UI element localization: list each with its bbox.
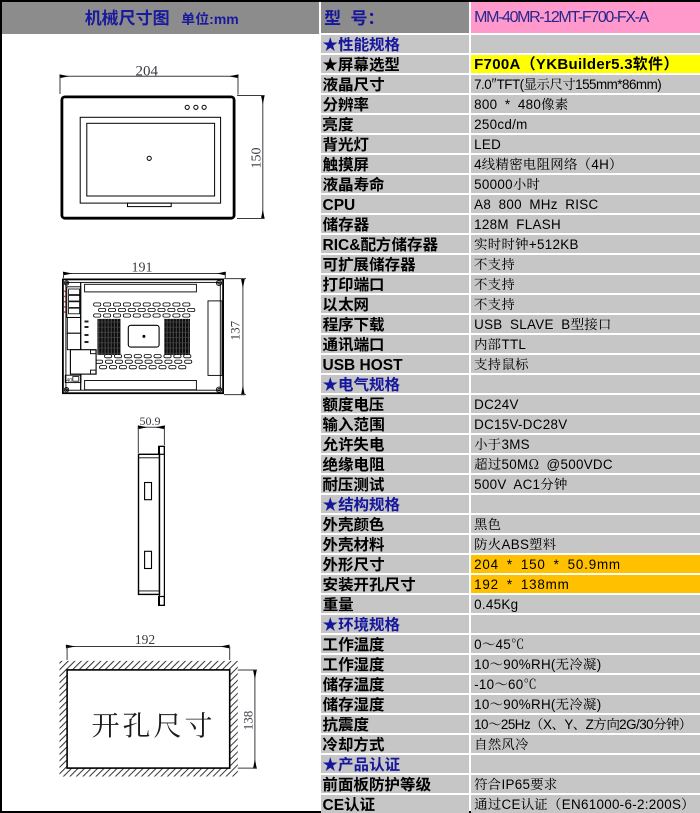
svg-text:开孔尺寸: 开孔尺寸 <box>91 705 215 745</box>
svg-text:191: 191 <box>132 261 153 276</box>
svg-text:192: 192 <box>135 632 155 647</box>
svg-text:40: 40 <box>66 378 72 384</box>
svg-text:138: 138 <box>241 711 256 731</box>
svg-text:50.9: 50.9 <box>140 414 161 428</box>
svg-text:204: 204 <box>135 63 158 79</box>
svg-text:150: 150 <box>250 148 265 169</box>
svg-text:137: 137 <box>228 320 243 340</box>
